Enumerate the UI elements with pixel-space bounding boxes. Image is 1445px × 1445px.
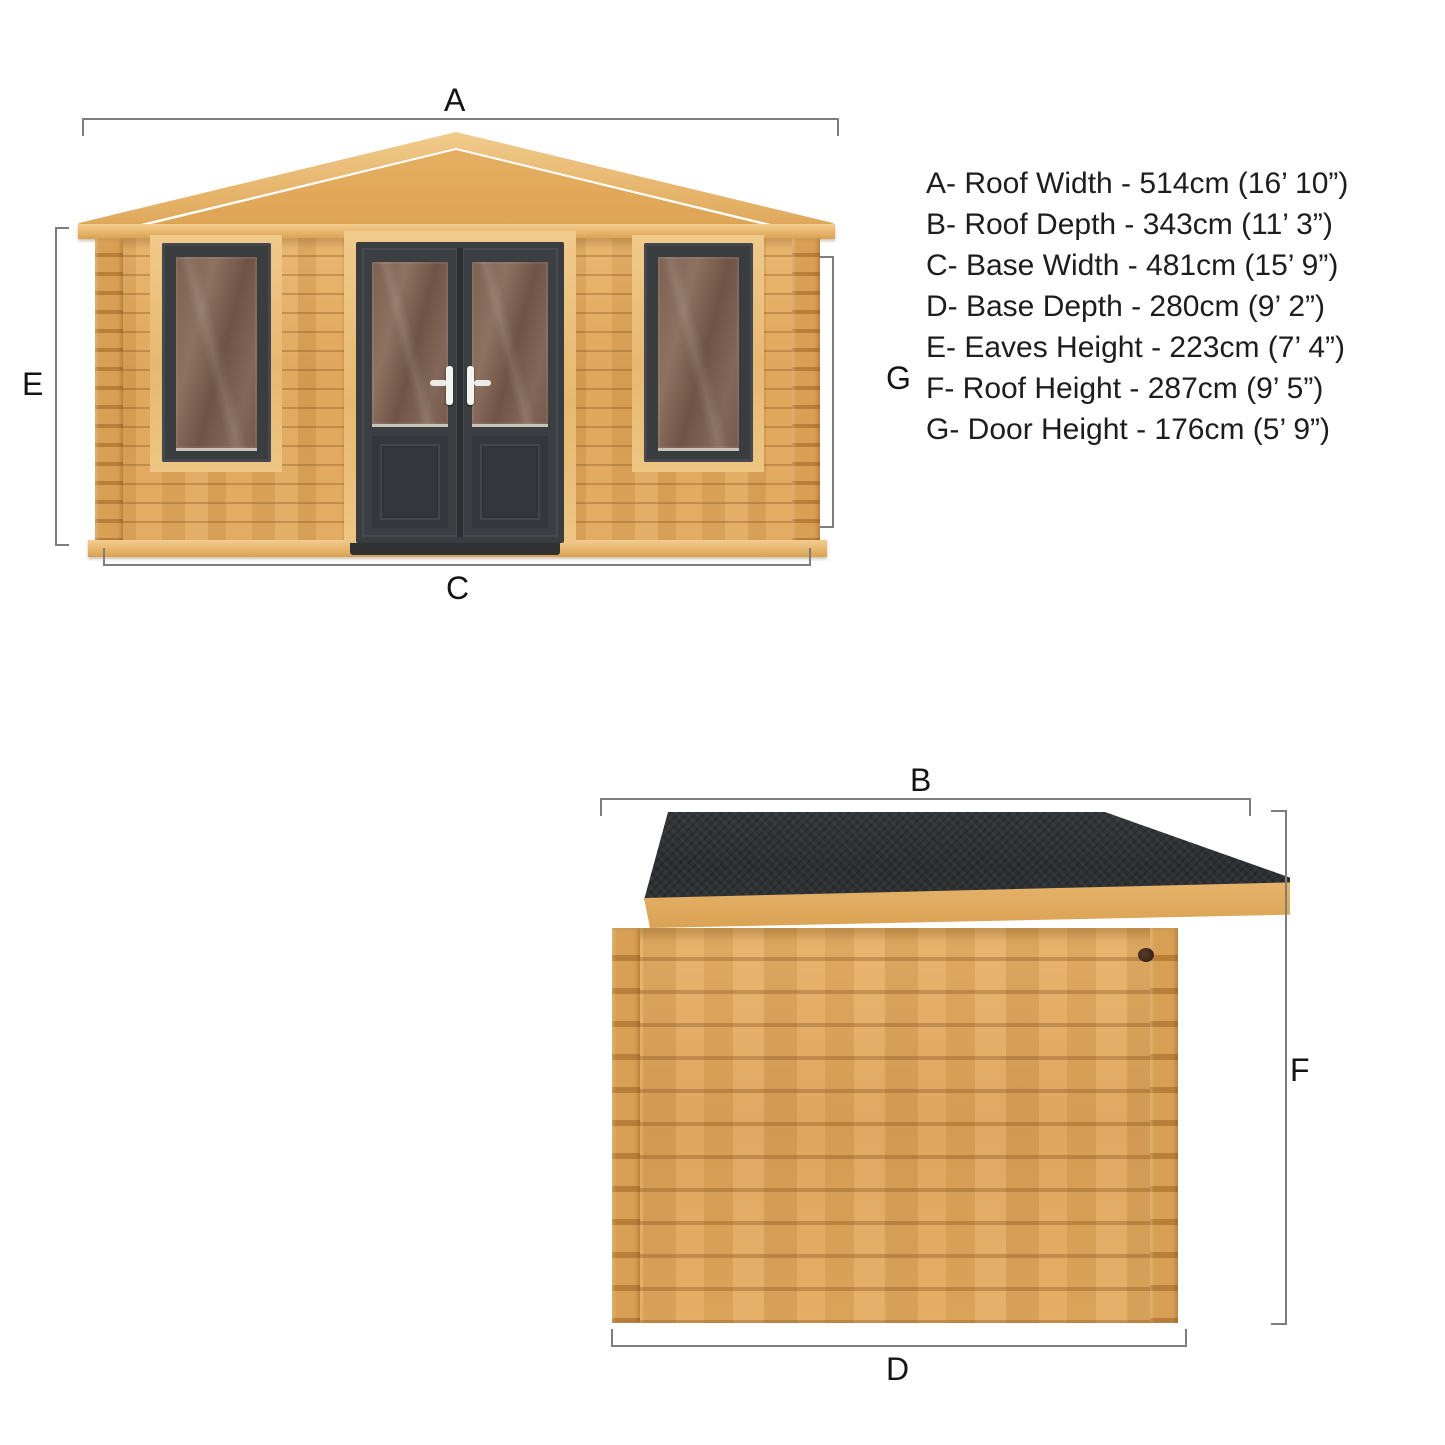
- door-handle-left: [446, 366, 453, 405]
- spec-item-base-width: C- Base Width - 481cm (15’ 9”): [926, 245, 1431, 286]
- dim-line-eaves-height: [55, 227, 69, 546]
- spec-item-door-height: G- Door Height - 176cm (5’ 9”): [926, 409, 1431, 450]
- dim-label-base-depth: D: [886, 1353, 909, 1385]
- dim-line-roof-height: [1271, 810, 1287, 1325]
- dim-line-door-height: [820, 256, 834, 528]
- product-dimension-diagram: A C E G B D F A- Roof Width - 514cm (16’…: [0, 0, 1445, 1445]
- dim-label-roof-depth: B: [910, 764, 931, 796]
- dim-line-roof-width: [82, 118, 839, 136]
- door-center-divider: [457, 248, 463, 537]
- door-right-glass: [472, 262, 548, 427]
- side-corner-logs-left: [612, 928, 640, 1323]
- window-left-glass: [176, 257, 257, 451]
- side-corner-logs-right: [1150, 928, 1178, 1323]
- door-handle-right-arm: [474, 380, 491, 386]
- dim-label-roof-width: A: [444, 84, 465, 116]
- side-wall: [612, 928, 1178, 1323]
- dim-label-eaves-height: E: [22, 368, 43, 400]
- spec-item-roof-depth: B- Roof Depth - 343cm (11’ 3”): [926, 204, 1431, 245]
- side-elevation: B D F: [560, 740, 1445, 1445]
- dim-label-roof-height: F: [1290, 1054, 1310, 1086]
- front-corner-logs-left: [95, 238, 123, 545]
- spec-item-roof-height: F- Roof Height - 287cm (9’ 5”): [926, 368, 1431, 409]
- spec-item-eaves-height: E- Eaves Height - 223cm (7’ 4”): [926, 327, 1431, 368]
- knot-hole: [1138, 948, 1154, 962]
- dim-line-base-depth: [611, 1329, 1187, 1347]
- window-right-glass: [658, 257, 739, 451]
- dim-line-roof-depth: [600, 798, 1251, 816]
- door-right-panel: [472, 436, 548, 528]
- front-elevation: A C E G: [0, 0, 910, 650]
- spec-item-base-depth: D- Base Depth - 280cm (9’ 2”): [926, 286, 1431, 327]
- door-handle-right: [467, 366, 474, 405]
- door-handle-left-arm: [430, 380, 447, 386]
- door-left-glass: [372, 262, 448, 427]
- dim-label-base-width: C: [446, 572, 469, 604]
- dim-label-door-height: G: [886, 362, 911, 394]
- door-left-panel: [372, 436, 448, 528]
- dim-line-base-width: [103, 548, 811, 566]
- spec-item-roof-width: A- Roof Width - 514cm (16’ 10”): [926, 163, 1431, 204]
- dimensions-spec-list: A- Roof Width - 514cm (16’ 10”) B- Roof …: [926, 163, 1431, 450]
- front-corner-logs-right: [792, 238, 820, 545]
